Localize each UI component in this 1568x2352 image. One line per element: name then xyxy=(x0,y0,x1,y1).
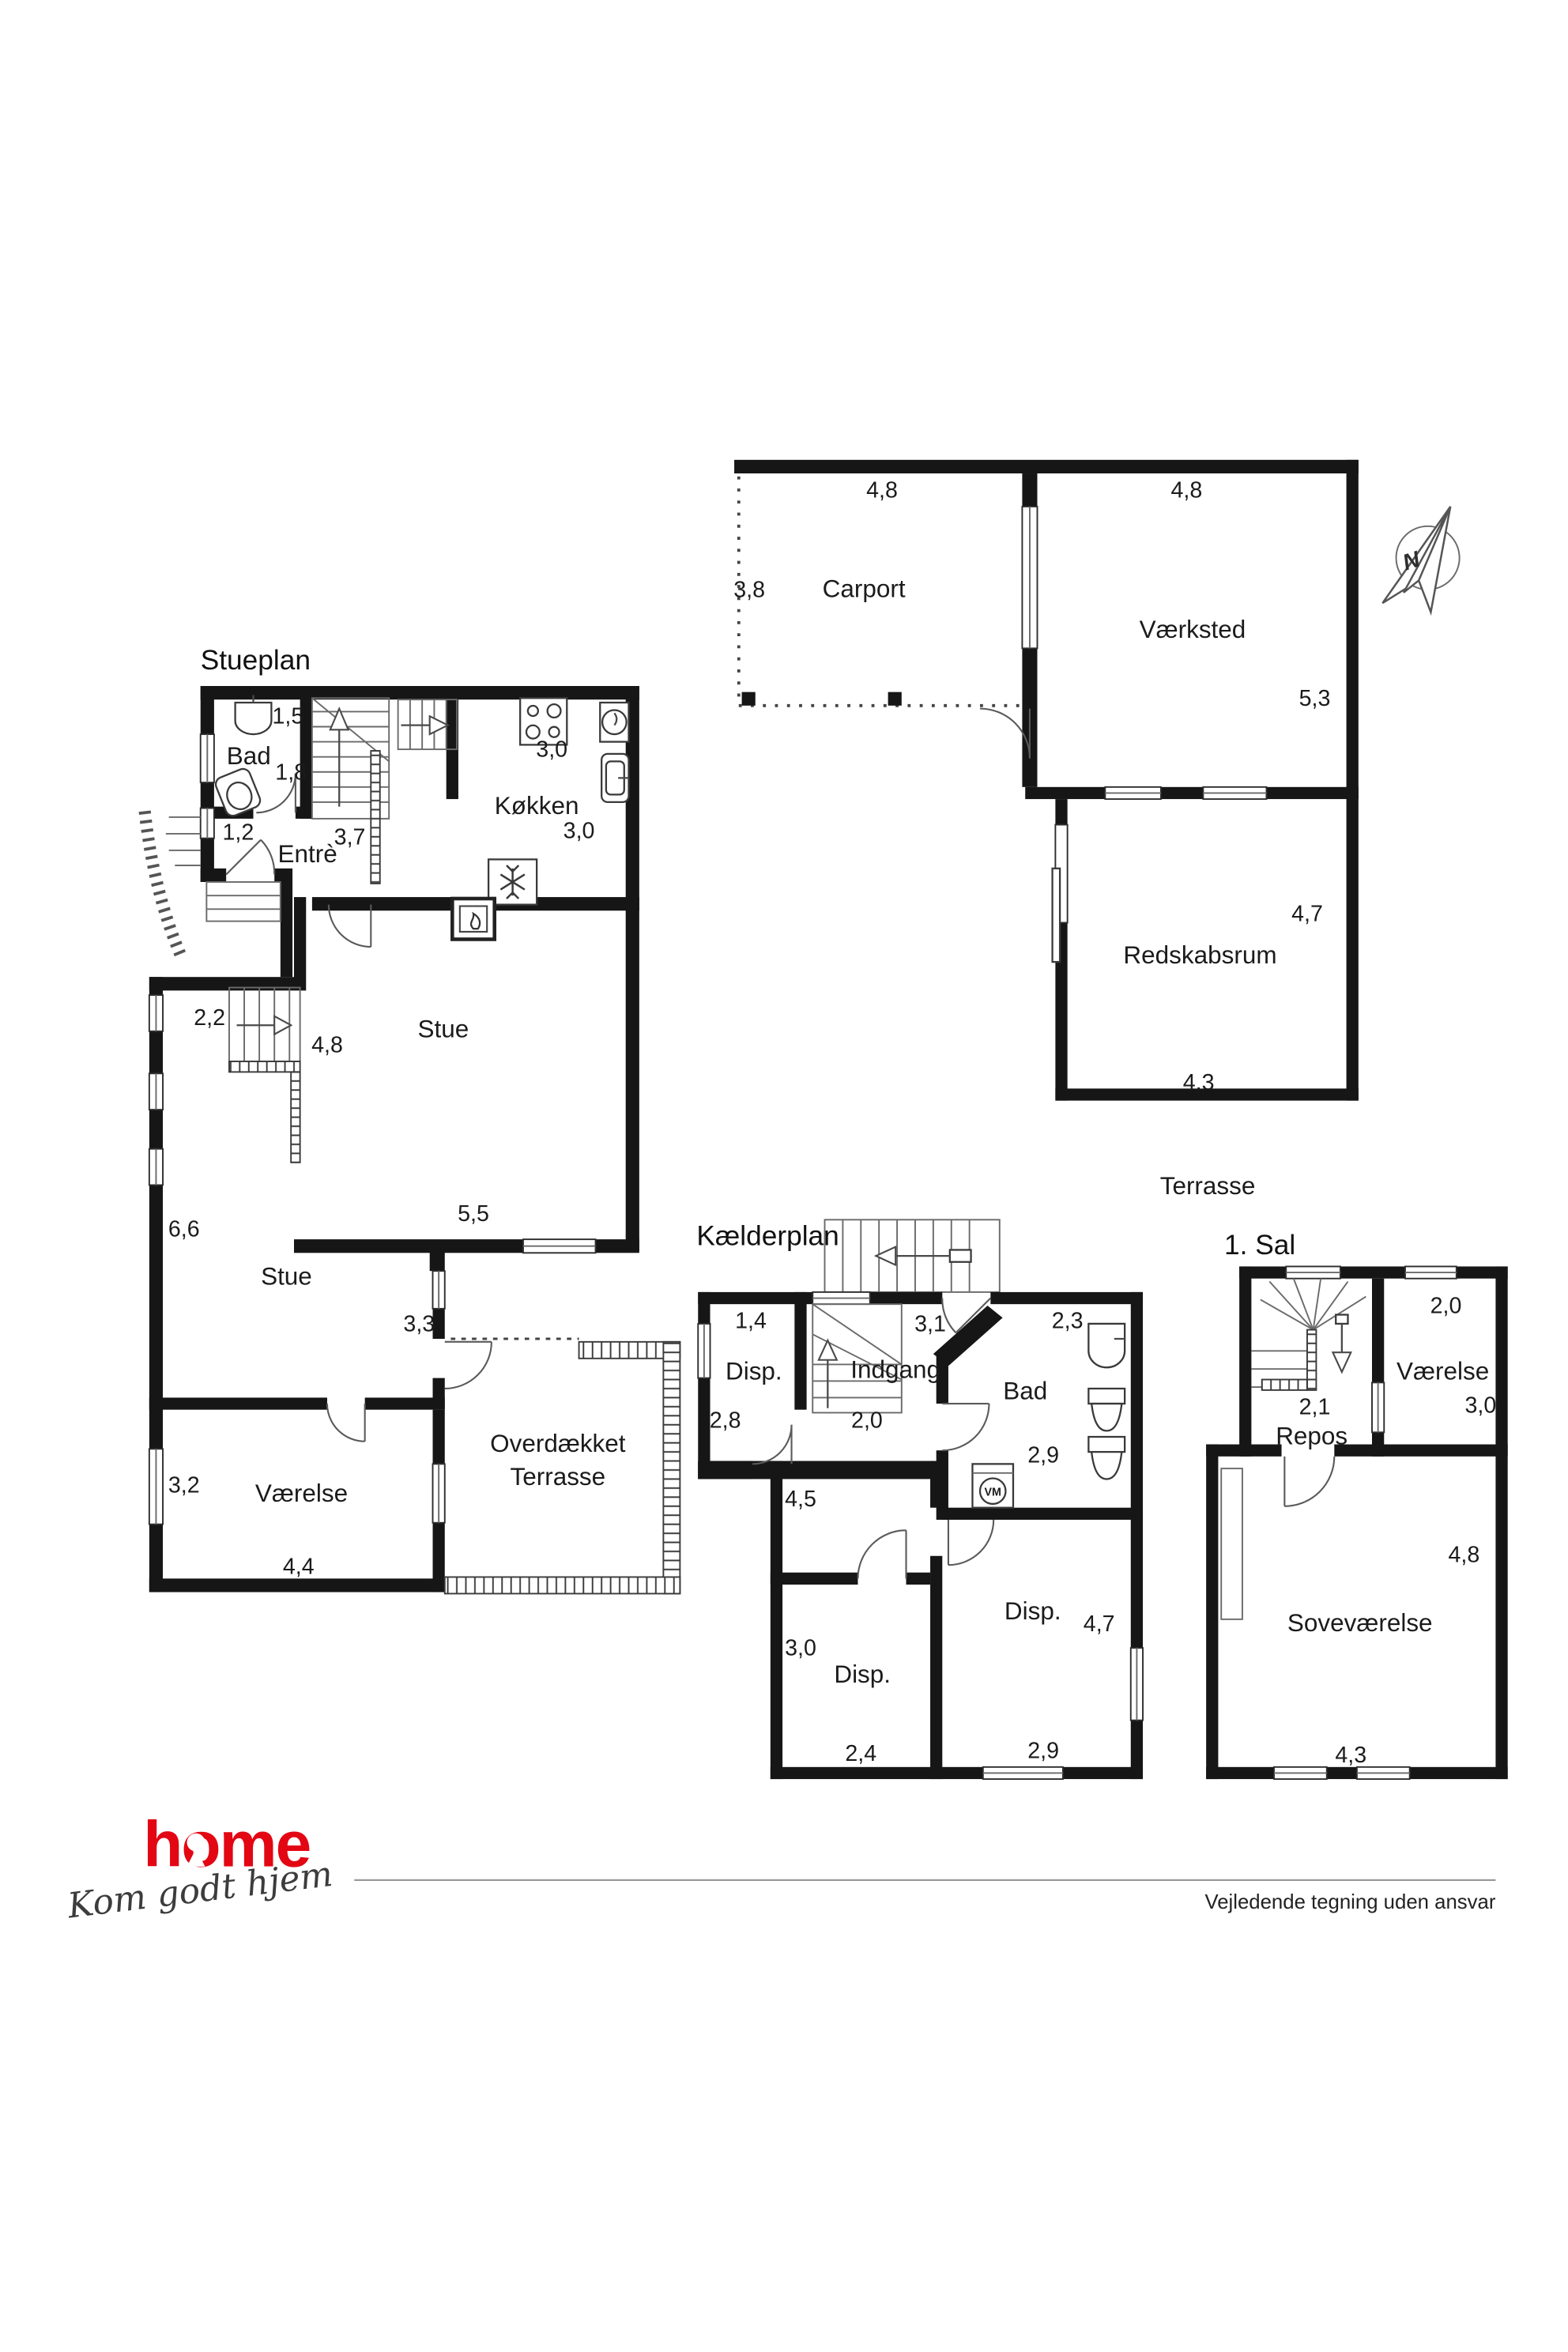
washing-machine-icon: VM xyxy=(972,1464,1013,1507)
dim-redskabsrum-width: 4,3 xyxy=(1183,1070,1215,1095)
first-floor-windows xyxy=(1274,1266,1457,1779)
room-label-indgang: Indgang xyxy=(850,1356,940,1384)
room-label-entre: Entrè xyxy=(278,840,337,868)
room-label-kaelder-disp1: Disp. xyxy=(726,1358,782,1385)
sovevaerelse-door xyxy=(1284,1457,1334,1506)
dim-kaelder-indgang-width: 3,1 xyxy=(914,1311,946,1336)
vaerelse-door xyxy=(327,1404,365,1442)
area-label-terrasse: Terrasse xyxy=(1160,1172,1256,1200)
floorplan-drawing: N 4,8 3,8 Carpor xyxy=(0,0,1568,2352)
vaerksted-window-left xyxy=(1022,507,1037,648)
sovevaerelse-closet xyxy=(1221,1468,1242,1619)
dim-vaerksted-width: 4,8 xyxy=(1170,478,1202,503)
kaelder-disp1-door xyxy=(752,1425,792,1464)
dim-vaerelse-width: 4,4 xyxy=(283,1555,315,1580)
kaelder-exterior-stair xyxy=(825,1219,1000,1292)
entre-stue-door xyxy=(329,905,371,947)
first-floor-stair xyxy=(1251,1279,1366,1390)
stue-level-stair xyxy=(229,988,300,1163)
room-label-stue-upper: Stue xyxy=(417,1015,469,1042)
dim-kaelder-disp3-width: 2,9 xyxy=(1027,1738,1059,1763)
room-label-sovevaerelse: Soveværelse xyxy=(1287,1609,1433,1637)
dim-koekken-depth: 3,0 xyxy=(563,819,595,844)
dim-stair-width: 3,7 xyxy=(334,824,366,850)
dim-kaelder-disp1-width: 1,4 xyxy=(735,1309,767,1334)
kitchen-boiler-icon xyxy=(600,703,628,742)
kaelder-toilet2-icon xyxy=(1088,1437,1125,1479)
disclaimer-text: Vejledende tegning uden ansvar xyxy=(1204,1891,1495,1913)
dim-stue-upper-depth: 4,8 xyxy=(311,1033,343,1058)
room-label-kaelder-disp2: Disp. xyxy=(834,1660,891,1688)
dim-carport-depth: 3,8 xyxy=(733,577,765,602)
dim-kaelder-disp2-depth: 3,0 xyxy=(785,1636,816,1661)
room-label-stue-lower: Stue xyxy=(261,1262,312,1290)
room-label-kaelder-disp3: Disp. xyxy=(1004,1597,1061,1625)
dim-stue-lower-door: 3,3 xyxy=(403,1311,435,1336)
dim-entre-window: 1,2 xyxy=(223,820,254,846)
plan-title-first-floor: 1. Sal xyxy=(1224,1230,1295,1261)
dim-kaelder-hall-depth: 4,5 xyxy=(785,1487,816,1512)
dim-koekken-width: 3,0 xyxy=(536,737,567,763)
dim-kaelder-disp3-depth: 4,7 xyxy=(1084,1611,1115,1637)
dim-firstfloor-vaerelse-width: 2,0 xyxy=(1430,1294,1462,1319)
room-label-kaelder-bad: Bad xyxy=(1003,1377,1047,1404)
first-floor-walls xyxy=(1206,1266,1508,1779)
plan-title-stueplan: Stueplan xyxy=(201,645,311,676)
dim-firstfloor-vaerelse-depth: 3,0 xyxy=(1464,1393,1496,1419)
area-label-overdaekket-terrasse: Terrasse xyxy=(511,1463,606,1491)
dim-carport-width: 4,8 xyxy=(866,478,898,503)
room-label-bad: Bad xyxy=(227,742,271,770)
dim-kaelder-disp2-width: 2,4 xyxy=(845,1741,876,1766)
dim-stue-stair: 2,2 xyxy=(194,1005,225,1031)
kaelder-disp3-door xyxy=(948,1520,993,1565)
room-label-vaerksted: Værksted xyxy=(1140,616,1246,643)
room-label-carport: Carport xyxy=(823,575,906,602)
room-label-repos: Repos xyxy=(1276,1423,1347,1450)
bathroom-sink-icon xyxy=(236,695,272,734)
outbuilding-walls xyxy=(734,460,1359,1101)
room-label-vaerelse: Værelse xyxy=(255,1479,348,1507)
kaelder-disp2-door xyxy=(857,1530,906,1578)
dim-stue-upper-width: 5,5 xyxy=(458,1201,489,1227)
dim-stue-lower-depth: 6,6 xyxy=(168,1216,200,1242)
room-label-redskabsrum: Redskabsrum xyxy=(1123,941,1276,969)
kaelder-bad-door xyxy=(942,1404,989,1450)
room-label-koekken: Køkken xyxy=(495,792,579,820)
dim-sovevaerelse-depth: 4,8 xyxy=(1448,1542,1479,1567)
dim-vaerksted-depth: 5,3 xyxy=(1299,686,1331,711)
dim-kaelder-indgang-depth: 2,0 xyxy=(851,1408,883,1434)
washing-machine-label: VM xyxy=(984,1486,1001,1498)
dim-kaelder-bad-depth: 2,9 xyxy=(1027,1442,1059,1468)
stue-terrace-door xyxy=(445,1342,492,1389)
dim-bad-width: 1,5 xyxy=(272,704,303,729)
dim-repos-width: 2,1 xyxy=(1299,1394,1331,1419)
room-label-firstfloor-vaerelse: Værelse xyxy=(1396,1358,1489,1385)
north-arrow-icon: N xyxy=(1382,507,1459,612)
carport-post xyxy=(888,692,902,706)
plan-title-kaelderplan: Kælderplan xyxy=(696,1221,839,1252)
dim-redskabsrum-depth: 4,7 xyxy=(1291,902,1323,927)
dim-sovevaerelse-width: 4,3 xyxy=(1335,1743,1366,1768)
kitchen-sink-icon xyxy=(601,754,628,802)
kaelder-toilet-icon xyxy=(1088,1389,1125,1430)
dim-vaerelse-depth: 3,2 xyxy=(168,1473,200,1498)
fireplace-icon xyxy=(452,899,494,940)
carport-post xyxy=(742,692,756,706)
dim-kaelder-disp1-depth: 2,8 xyxy=(710,1408,741,1434)
dim-bad-depth: 1,8 xyxy=(275,759,307,785)
area-label-overdaekket: Overdækket xyxy=(490,1430,626,1457)
dim-kaelder-bad-width: 2,3 xyxy=(1052,1309,1084,1334)
kaelder-bad-sink-icon xyxy=(1088,1324,1125,1367)
